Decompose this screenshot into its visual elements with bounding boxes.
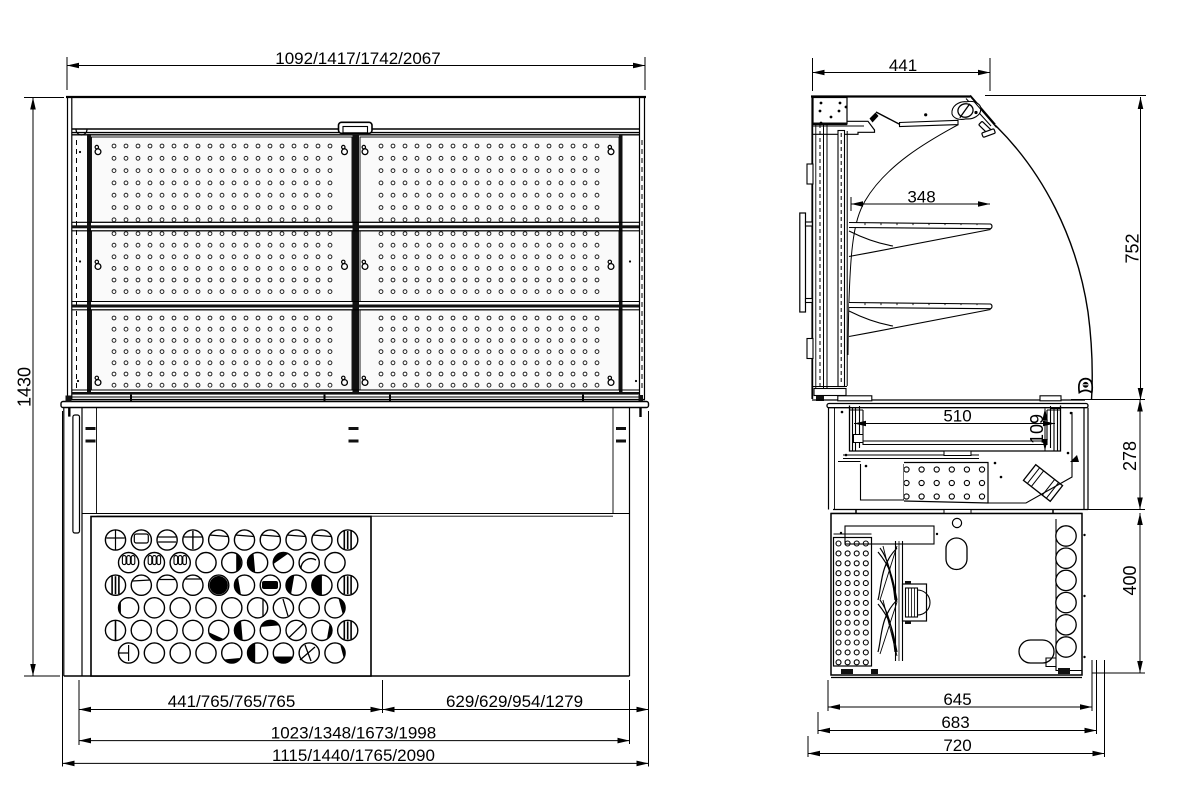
svg-text:441: 441: [889, 56, 917, 75]
svg-text:109: 109: [1027, 414, 1047, 444]
svg-text:645: 645: [943, 690, 971, 709]
svg-text:348: 348: [907, 188, 935, 207]
svg-text:683: 683: [941, 713, 969, 732]
svg-text:510: 510: [943, 407, 971, 426]
svg-text:400: 400: [1120, 565, 1140, 595]
svg-text:720: 720: [943, 736, 971, 755]
svg-text:1115/1440/1765/2090: 1115/1440/1765/2090: [272, 746, 435, 765]
svg-text:1092/1417/1742/2067: 1092/1417/1742/2067: [275, 49, 440, 68]
svg-text:1430: 1430: [15, 367, 35, 407]
svg-text:629/629/954/1279: 629/629/954/1279: [446, 692, 583, 711]
svg-text:441/765/765/765: 441/765/765/765: [168, 692, 296, 711]
svg-text:1023/1348/1673/1998: 1023/1348/1673/1998: [271, 724, 436, 743]
svg-text:278: 278: [1120, 441, 1140, 471]
svg-text:752: 752: [1123, 233, 1143, 263]
